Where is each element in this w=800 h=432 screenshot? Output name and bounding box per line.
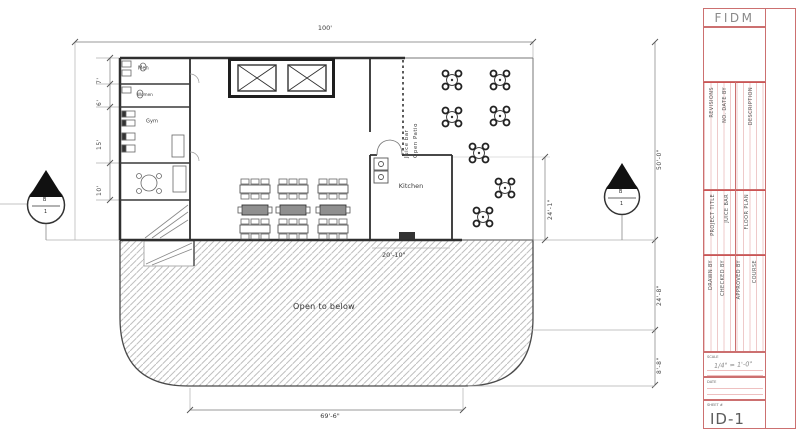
dim-right-50: 50'-0" xyxy=(657,116,663,170)
fidm-logo: FIDM xyxy=(703,8,766,27)
dim-patio-depth: 24'-1" xyxy=(548,178,554,220)
tb-text-line: COURSE xyxy=(752,260,758,283)
label-open-to-below: Open to below xyxy=(264,303,384,311)
sheet-number: ID-1 xyxy=(710,410,745,428)
dim-left-15: 15' xyxy=(97,124,103,150)
marker-right-letter: B xyxy=(619,189,622,195)
dim-left-7: 7' xyxy=(97,62,103,84)
marker-left-number: 1 xyxy=(44,209,47,215)
date-field: DATE xyxy=(703,377,766,400)
dim-left-10: 10' xyxy=(97,170,103,196)
tb-text-line: PROJECT TITLE xyxy=(710,194,716,236)
date-label: DATE xyxy=(707,380,716,384)
title-block-blank-box xyxy=(703,27,766,82)
plan-linework xyxy=(0,0,800,432)
sheet-label: SHEET # xyxy=(707,403,723,407)
tb-text-line: APPROVED BY xyxy=(736,260,742,299)
label-juice-bar: Juice bar xyxy=(405,80,411,158)
tb-text-line: DRAWN BY xyxy=(708,260,714,290)
tb-text-line: CHECKED BY xyxy=(720,260,726,296)
tb-text-line: JUICE BAR xyxy=(724,194,730,223)
kitchen-sink xyxy=(399,232,415,239)
dining-tables xyxy=(238,179,350,239)
tb-text-line: REVISIONS xyxy=(709,87,715,118)
scale-label: SCALE xyxy=(707,355,719,359)
floor-plan-sheet: 100' 7' 6' 15' 10' Men Women Gym Kitchen… xyxy=(0,0,800,432)
tb-text-line: NO. DATE BY xyxy=(722,87,728,123)
dim-top-width: 100' xyxy=(302,25,348,32)
room-label-gym: Gym xyxy=(146,119,158,124)
dim-right-24: 24'-8" xyxy=(657,266,663,306)
room-fixtures xyxy=(122,61,188,238)
open-to-below-hatch xyxy=(120,240,533,386)
room-label-women: Women xyxy=(137,93,153,97)
dim-kitchen-width: 20'-10" xyxy=(382,252,406,259)
dim-right-8: 8'-8" xyxy=(657,340,663,374)
sheet-field: SHEET # ID-1 xyxy=(703,400,766,429)
dim-left-6: 6' xyxy=(97,88,103,106)
room-label-men: Men xyxy=(138,66,149,71)
marker-right-number: 1 xyxy=(620,201,623,207)
tb-text-line: DESCRIPTION xyxy=(748,87,754,125)
fidm-logo-text: FIDM xyxy=(714,11,754,25)
lounge-table xyxy=(137,166,187,194)
label-open-patio: Open Patio xyxy=(414,80,420,158)
title-block-divider xyxy=(735,82,736,352)
stair xyxy=(145,205,188,238)
elevator-shafts xyxy=(230,60,334,97)
room-label-kitchen: Kitchen xyxy=(383,183,439,190)
section-marker-left xyxy=(28,170,65,240)
tb-text-line: FLOOR PLAN xyxy=(744,194,750,230)
marker-left-letter: B xyxy=(43,197,46,203)
scale-field: SCALE 1/4" = 1'-0" xyxy=(703,352,766,377)
kitchen-appliances xyxy=(374,158,415,239)
dim-bottom-width: 69'-6" xyxy=(300,413,360,420)
patio-tables xyxy=(443,71,515,227)
scale-value: 1/4" = 1'-0" xyxy=(714,360,753,370)
